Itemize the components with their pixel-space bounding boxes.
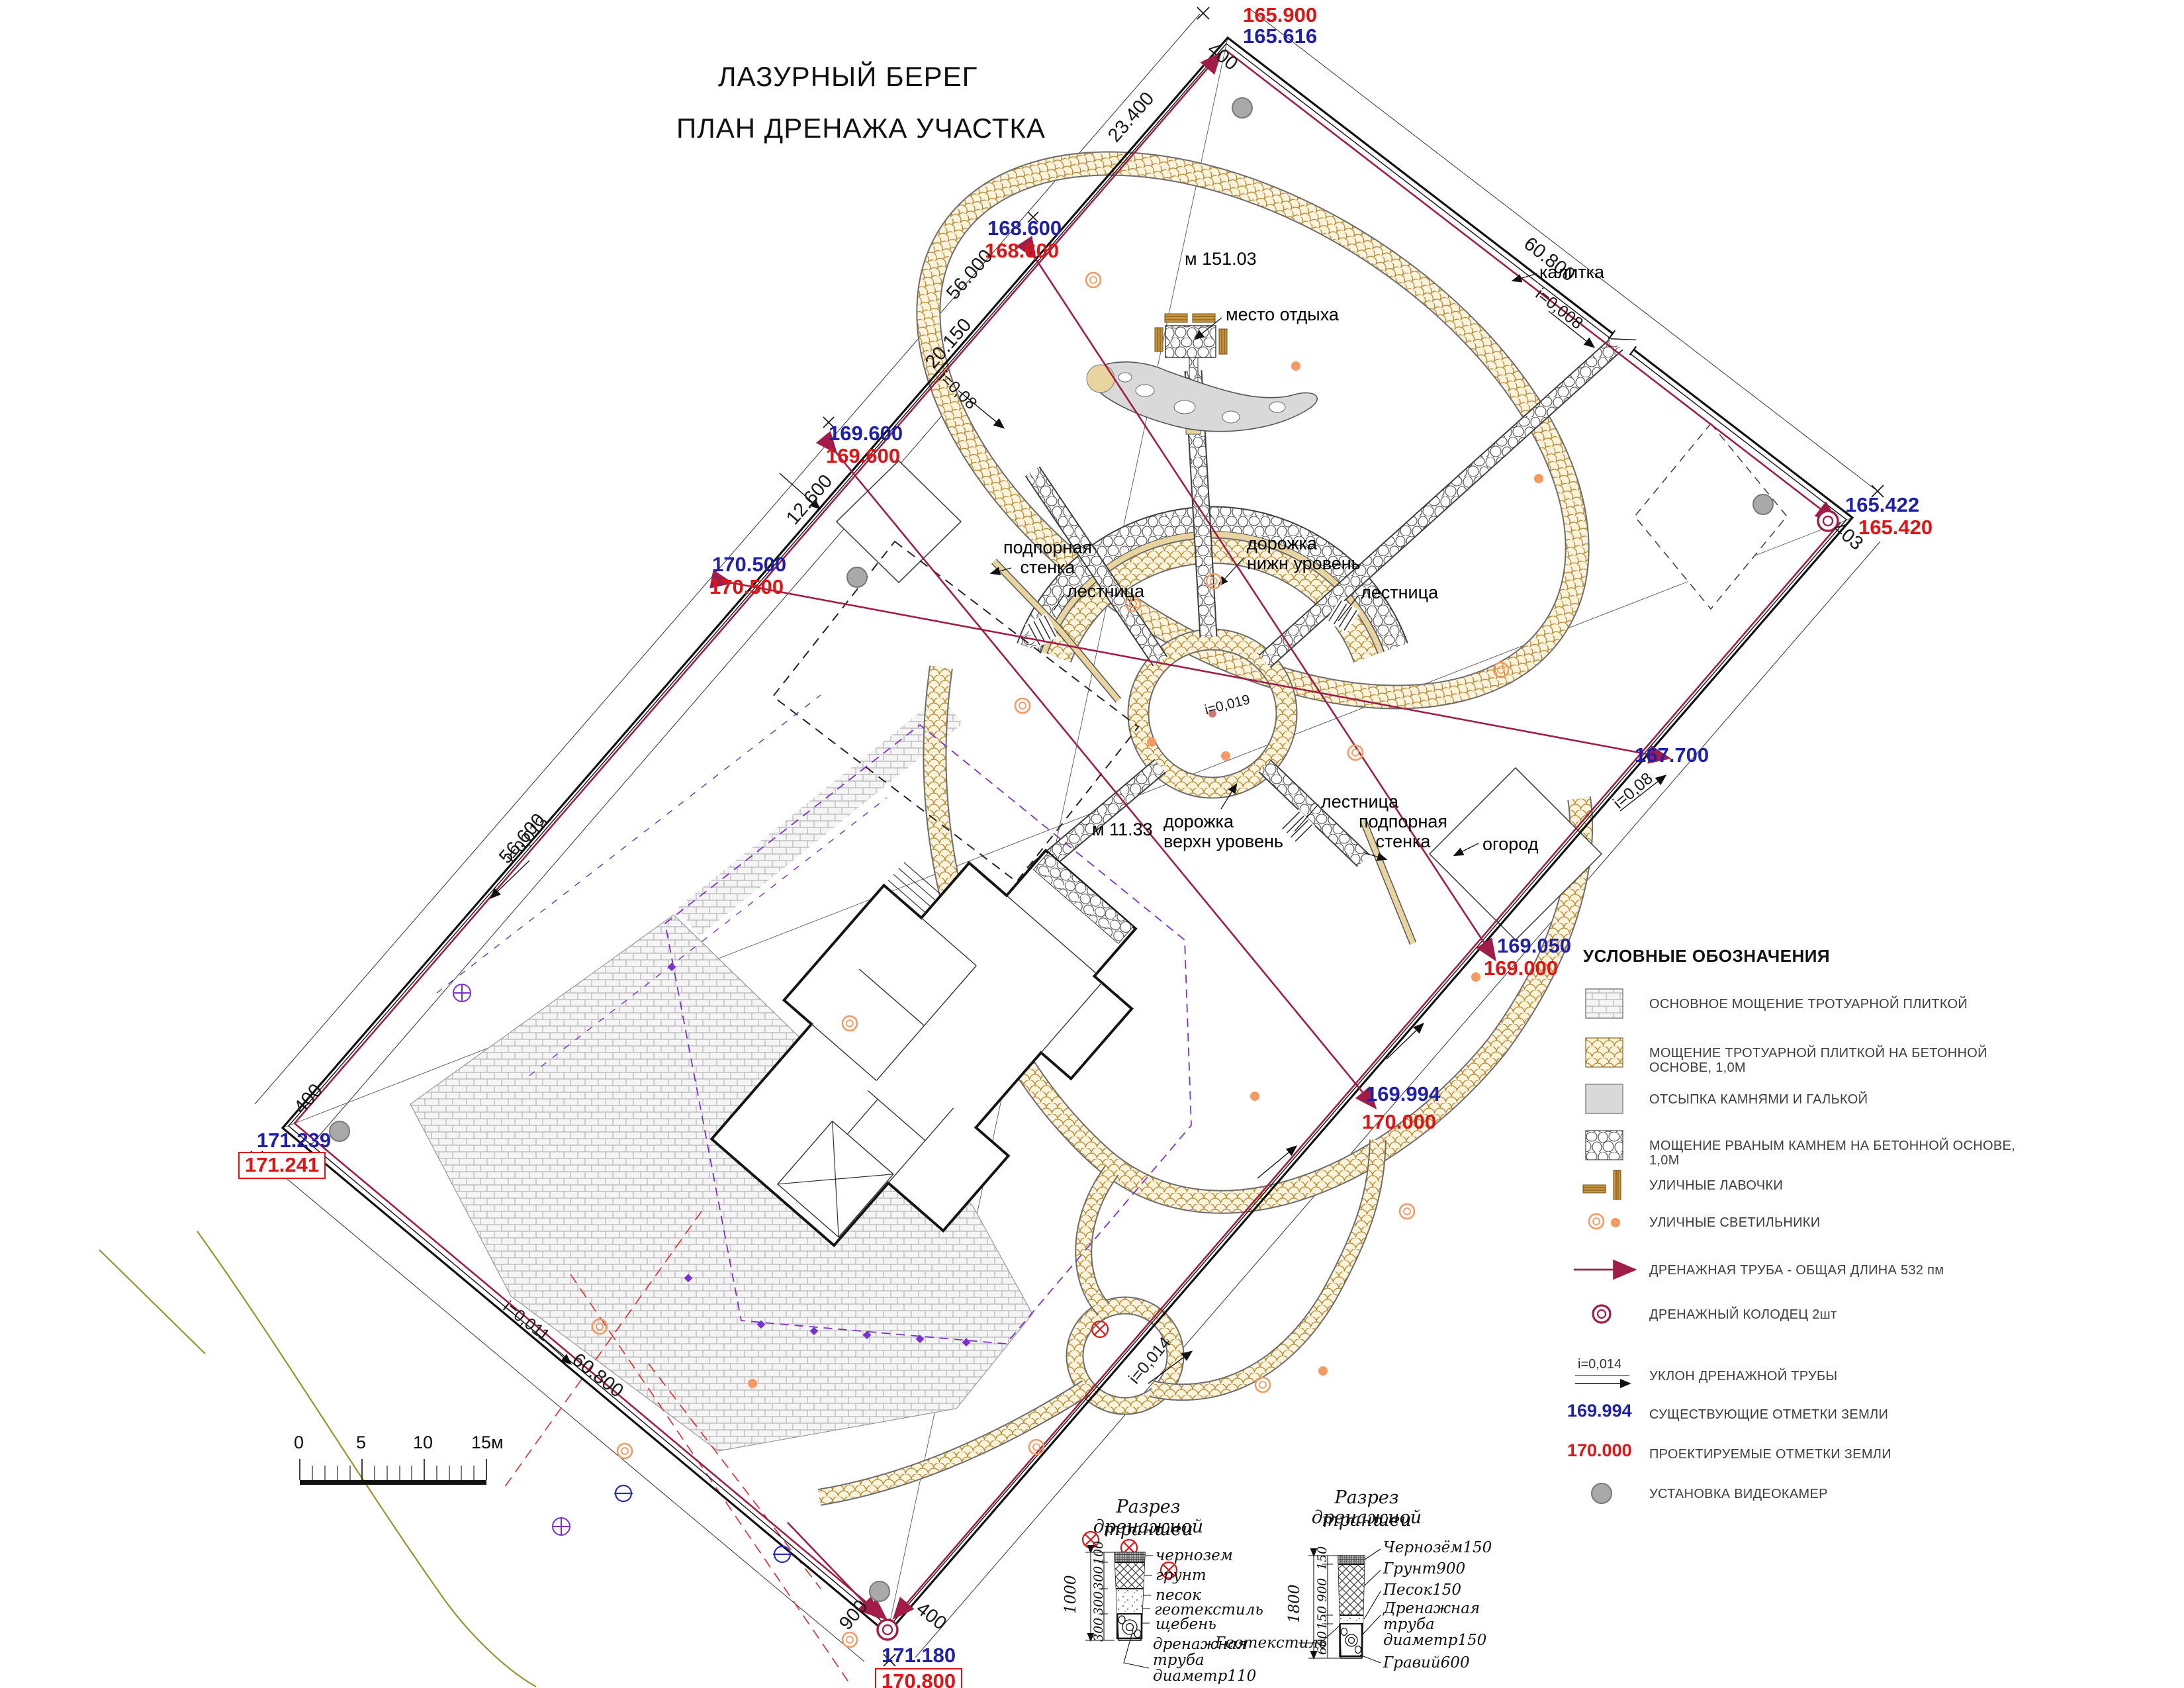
vegetable-garden-label: огород xyxy=(1482,834,1538,854)
section-layer-label: Чернозём150 xyxy=(1383,1540,1492,1557)
stairs-label: лестница xyxy=(1067,581,1144,601)
section-gravel-label: Гравий600 xyxy=(1383,1655,1470,1672)
section-dim: 150 xyxy=(1316,1606,1330,1630)
legend-camera-icon xyxy=(1592,1483,1612,1503)
elevation-projected: 169.600 xyxy=(826,445,900,468)
legend-item: ДРЕНАЖНАЯ ТРУБА - ОБЩАЯ ДЛИНА 532 пм xyxy=(1649,1263,2046,1278)
section-layer-label: грунт xyxy=(1156,1568,1206,1585)
lower-path-label: дорожка нижн уровень xyxy=(1247,534,1361,573)
legend-item: УЛИЧНЫЕ ЛАВОЧКИ xyxy=(1649,1178,2046,1193)
elevation-existing: 165.422 xyxy=(1845,494,1919,517)
legend-well-icon xyxy=(1593,1305,1610,1323)
stairs-label: лестница xyxy=(1321,792,1398,812)
legend-item: ПРОЕКТИРУЕМЫЕ ОТМЕТКИ ЗЕМЛИ xyxy=(1649,1447,2046,1462)
legend-item: УЛИЧНЫЕ СВЕТИЛЬНИКИ xyxy=(1649,1215,2046,1230)
legend-item: УСТАНОВКА ВИДЕОКАМЕР xyxy=(1649,1487,2046,1501)
legend-slope-value: i=0,014 xyxy=(1578,1357,1621,1372)
legend-symbols xyxy=(1574,989,1633,1503)
legend-lamp-icon xyxy=(1589,1214,1620,1229)
rest-area-label: место отдыха xyxy=(1226,305,1339,324)
legend-bench-icon xyxy=(1583,1170,1621,1199)
section-layer-label: Песок150 xyxy=(1383,1582,1461,1599)
elevation-existing: 169.600 xyxy=(829,422,903,445)
elevation-existing: 167.700 xyxy=(1635,744,1709,767)
retaining-wall-label: подпорная стенка xyxy=(998,538,1097,577)
elevation-projected: 165.420 xyxy=(1858,516,1933,539)
sheet-title-line2: ПЛАН ДРЕНАЖА УЧАСТКА xyxy=(676,113,1046,144)
section-title: траншеи xyxy=(1072,1520,1224,1540)
scalebar-15: 15м xyxy=(471,1432,504,1452)
elevation-existing: 169.994 xyxy=(1366,1083,1440,1106)
elevation-projected-boxed: 170.800 xyxy=(875,1668,962,1688)
elevation-projected: 170.500 xyxy=(709,576,784,599)
section-dim: 300 xyxy=(1092,1566,1106,1590)
sheet-title-line1: ЛАЗУРНЫЙ БЕРЕГ xyxy=(718,61,978,92)
terrain-contour-lines xyxy=(99,1231,536,1687)
section-title: траншеи xyxy=(1291,1511,1443,1530)
legend-existing-mark: 169.994 xyxy=(1567,1401,1632,1421)
elevation-existing: 171.239 xyxy=(257,1129,331,1152)
elevation-existing: 165.616 xyxy=(1243,25,1317,48)
elevation-existing: 170.500 xyxy=(712,553,786,577)
legend-item: МОЩЕНИЕ РВАНЫМ КАМНЕМ НА БЕТОННОЙ ОСНОВЕ… xyxy=(1649,1139,2046,1168)
section-pipe-label: Дренажная xyxy=(1383,1601,1480,1618)
scalebar-10: 10 xyxy=(413,1432,433,1452)
elevation-projected-boxed: 171.241 xyxy=(238,1152,326,1179)
legend-item: МОЩЕНИЕ ТРОТУАРНОЙ ПЛИТКОЙ НА БЕТОННОЙ О… xyxy=(1649,1046,2046,1076)
section-pipe-label: труба xyxy=(1383,1617,1435,1634)
stairs-label: лестница xyxy=(1361,583,1438,602)
legend-title: УСЛОВНЫЕ ОБОЗНАЧЕНИЯ xyxy=(1583,947,1830,966)
section-dim: 300 xyxy=(1092,1618,1106,1642)
drainage-plan-sheet: ЛАЗУРНЫЙ БЕРЕГ ПЛАН ДРЕНАЖА УЧАСТКА 165.… xyxy=(0,0,2184,1688)
upper-loop-path xyxy=(833,54,1672,808)
elevation-existing: 169.050 xyxy=(1497,935,1571,958)
path-length-label: м 11.33 xyxy=(1092,820,1153,839)
section-dim: 1800 xyxy=(1287,1584,1304,1623)
elevation-existing: 168.600 xyxy=(987,217,1062,240)
legend-item: ДРЕНАЖНЫЙ КОЛОДЕЦ 2шт xyxy=(1649,1307,2046,1322)
section-dim: 1000 xyxy=(1063,1575,1080,1614)
elevation-projected: 165.900 xyxy=(1243,4,1317,27)
upper-path-label: дорожка верхн уровень xyxy=(1163,812,1283,851)
legend-item: УКЛОН ДРЕНАЖНОЙ ТРУБЫ xyxy=(1649,1369,2046,1383)
section-layer-label: чернозем xyxy=(1156,1548,1233,1565)
legend-projected-mark: 170.000 xyxy=(1567,1440,1632,1460)
section-dim: 300 xyxy=(1092,1591,1106,1615)
elevation-existing: 171.180 xyxy=(882,1644,956,1667)
section-layer-label: щебень xyxy=(1156,1617,1216,1634)
retaining-wall-label: подпорная стенка xyxy=(1350,812,1456,851)
section-dim: 100 xyxy=(1092,1541,1106,1565)
path-length-label: м 151.03 xyxy=(1185,249,1257,269)
scalebar-0: 0 xyxy=(294,1432,304,1452)
section-dim: 150 xyxy=(1316,1546,1330,1570)
elevation-projected: 169.000 xyxy=(1484,957,1558,980)
section-dim: 900 xyxy=(1316,1578,1330,1602)
section-pipe-label: труба xyxy=(1153,1652,1205,1669)
legend-item: ОТСЫПКА КАМНЯМИ И ГАЛЬКОЙ xyxy=(1649,1092,2046,1107)
legend-item: ОСНОВНОЕ МОЩЕНИЕ ТРОТУАРНОЙ ПЛИТКОЙ xyxy=(1649,997,2046,1011)
gate-label: калитка xyxy=(1539,262,1604,282)
scale-bar xyxy=(300,1459,486,1485)
plan-linework xyxy=(0,0,2184,1688)
legend-item: СУЩЕСТВУЮЩИЕ ОТМЕТКИ ЗЕМЛИ xyxy=(1649,1407,2046,1422)
section-pipe-label: диаметр150 xyxy=(1383,1632,1486,1650)
elevation-projected: 170.000 xyxy=(1362,1111,1436,1134)
section-layer-label: Грунт900 xyxy=(1383,1561,1465,1578)
section-pipe-label: диаметр110 xyxy=(1153,1668,1256,1685)
section-geotextile-label: Геотекстиль xyxy=(1215,1635,1327,1652)
scalebar-5: 5 xyxy=(356,1432,366,1452)
